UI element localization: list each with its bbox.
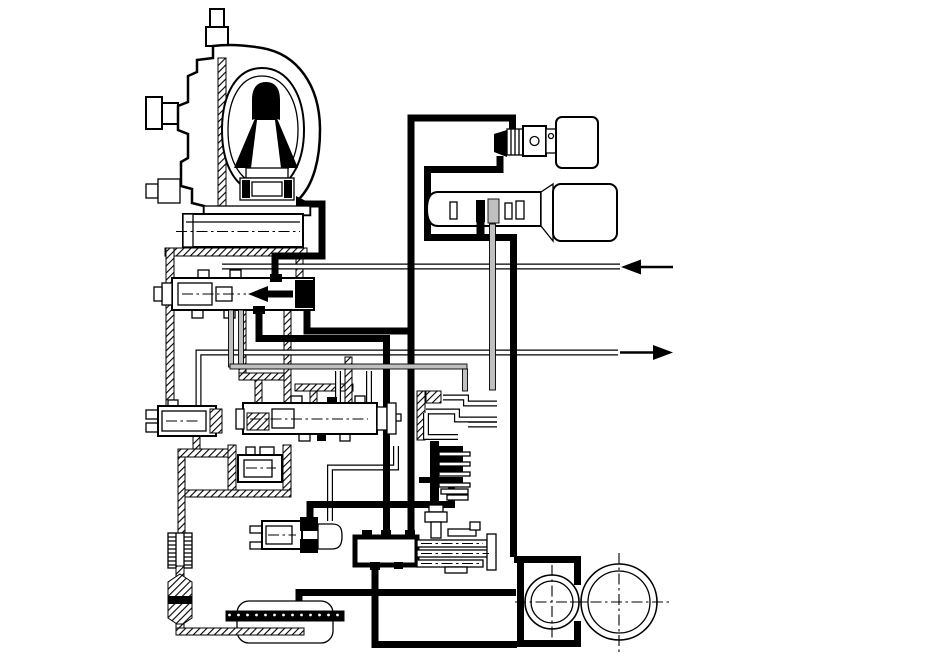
hub-seal-left (242, 180, 250, 198)
valve-e-cup (318, 524, 342, 549)
clutch-plate (439, 477, 463, 483)
accumulator-box-left (228, 445, 236, 492)
clutch-hub-bar (430, 441, 439, 509)
oil-filter (168, 533, 192, 568)
input-flange-outer (146, 184, 158, 198)
gray-line-drop (463, 369, 468, 391)
clutch-plate (439, 456, 463, 462)
solenoid-slot (516, 201, 524, 219)
input-flange (158, 179, 180, 203)
regulator-right-cap (295, 280, 314, 308)
pressure-regulator-valve (154, 270, 314, 318)
regulator-top-port (270, 274, 282, 282)
valve-c-plug (247, 413, 269, 430)
filter-body (168, 533, 192, 568)
pan-screen (226, 611, 344, 621)
passage-branch2 (295, 384, 353, 391)
clutch-port (419, 477, 430, 483)
output-shaft-housing (176, 214, 303, 247)
diagram-background (0, 0, 950, 671)
top-bolt-shaft (210, 9, 224, 27)
channel-orifice (426, 391, 441, 403)
oil-pan (226, 601, 344, 643)
strainer-band (168, 596, 192, 604)
manual-spool-end (487, 534, 496, 570)
hub-inner (252, 182, 282, 196)
left-bolt-shaft (162, 103, 178, 124)
passage-shiftvalve-feed1 (255, 380, 262, 404)
hub-plate (246, 168, 288, 178)
housing-body (183, 214, 303, 247)
gray-line-horizontal (230, 364, 467, 369)
valve-bolt-shaft (431, 522, 441, 538)
passage-branch1 (239, 373, 291, 380)
turbine-hub (252, 82, 280, 120)
accumulator-box-right (283, 445, 291, 493)
top-bolt-head (206, 27, 228, 46)
passage-regulator-drop2 (284, 310, 291, 404)
strainer-suction-pipe (176, 628, 304, 635)
valve-c-end-cap (377, 407, 387, 430)
manual-valve-body (355, 537, 417, 565)
regulator-left-cap (162, 283, 172, 305)
valve-b-plug (210, 409, 222, 433)
shift-valve-center (236, 396, 401, 441)
passage-to-filter (178, 457, 185, 533)
clutch-plate (439, 466, 463, 472)
valve-bolt-tip (429, 505, 443, 512)
hydraulic-diagram (0, 0, 950, 671)
solenoid-slot (450, 202, 457, 219)
gray-line-regulator2 (239, 310, 244, 369)
solenoid-slot (505, 203, 512, 219)
passage-left-main (166, 248, 174, 406)
pan-body (237, 601, 333, 643)
housing-step (183, 214, 193, 247)
valve-e-port-bottom (300, 539, 318, 553)
valve-e-port-top (300, 517, 318, 531)
solenoid1-port-circle (530, 137, 539, 146)
accumulator-box-bottom (185, 490, 291, 497)
hub-seal-right (284, 180, 292, 198)
regulator-bottom-port (253, 306, 265, 314)
gray-line-regulator1 (229, 310, 234, 367)
solenoid-slot-gray (488, 199, 499, 223)
solenoid1-coil (556, 117, 598, 168)
slot-drop-line (477, 222, 485, 238)
valve-bolt-head (425, 512, 447, 522)
hydraulic-diagram-page (0, 0, 950, 671)
linear-solenoid-coil (553, 184, 617, 241)
shift-valve-left (146, 400, 222, 436)
solenoid-slot-black (476, 200, 485, 222)
passage-low-branch (178, 449, 232, 457)
gray-line-linear-solenoid (490, 224, 496, 390)
left-bolt-head (146, 97, 162, 129)
clutch-plate (439, 446, 463, 452)
